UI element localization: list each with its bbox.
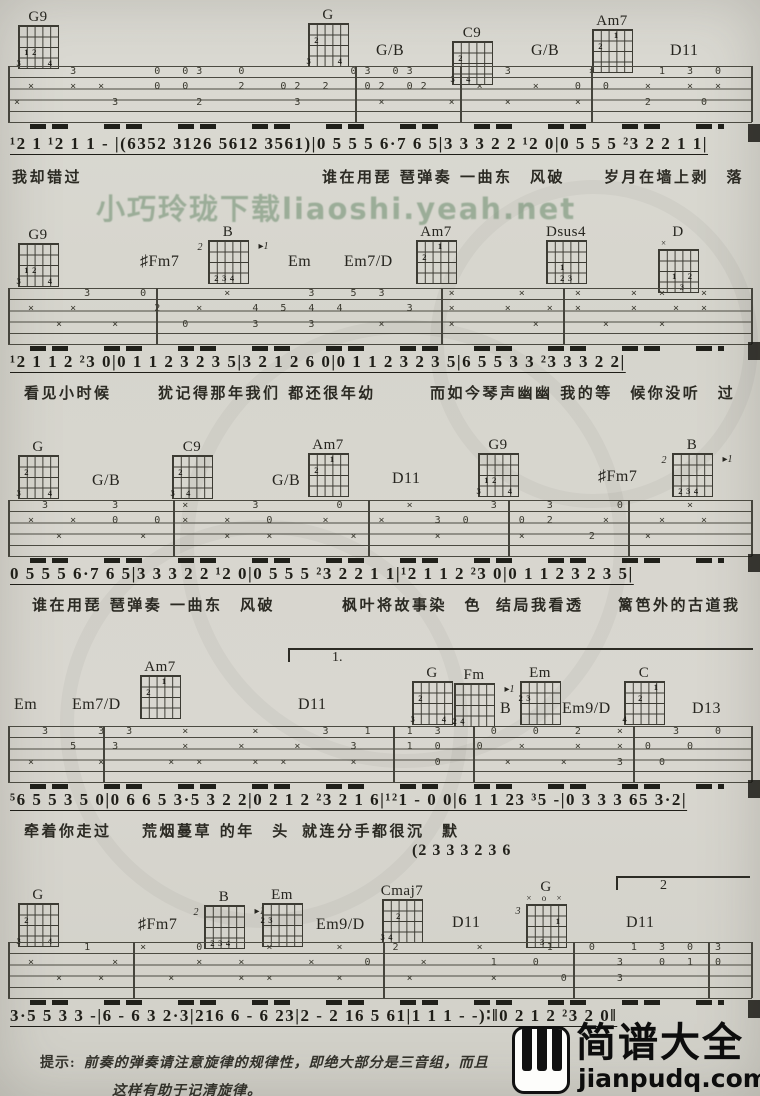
chord-diagram-label: B <box>206 225 250 239</box>
chord-finger-number: 2 <box>314 36 318 44</box>
chord-diagram-label: C9 <box>450 26 494 40</box>
melody-line: ¹2 1 1 2 ²3 0|0 1 1 2 3 2 3 5|3 2 1 2 6 … <box>10 352 756 372</box>
chord-finger-number: 4 <box>694 487 698 495</box>
chord-label: D11 <box>452 914 480 932</box>
chord-label: D11 <box>670 42 698 60</box>
tab-barline <box>8 288 10 344</box>
scan-edge-mark <box>748 124 760 142</box>
chord-diagram: Em23 <box>260 888 304 947</box>
piano-key <box>552 1029 562 1071</box>
chord-finger-number: 4 <box>48 489 52 497</box>
chord-grid: 12 <box>140 675 181 719</box>
tab-barline <box>751 500 753 556</box>
chord-diagram: B2342▸1 <box>670 438 714 497</box>
chord-diagram-label: Em <box>518 666 562 680</box>
chord-grid: 124 <box>624 681 665 725</box>
chord-label: B <box>500 700 511 718</box>
chord-finger-number: 2 <box>560 274 564 282</box>
chord-finger-number: 1 <box>556 917 560 925</box>
lyric-segment: 犹记得那年我们 都还很年幼 <box>158 382 376 403</box>
site-logo: 简谱大全 jianpudq.com <box>512 1022 760 1096</box>
chord-label: G/B <box>531 42 559 60</box>
chord-diagram: Fm24▸1 <box>452 668 496 727</box>
chord-grid: 2342▸1 <box>672 453 713 497</box>
chord-finger-number: 2 <box>458 54 462 62</box>
chord-grid: 123 <box>546 240 587 284</box>
chord-label: G/B <box>272 472 300 490</box>
chord-label: D11 <box>392 470 420 488</box>
sheet-page: 小巧玲珑下载liaoshi.yeah.net G91234G234G/BC923… <box>0 0 760 1096</box>
chord-finger-number: 1 <box>330 455 334 463</box>
chord-diagram: Am712 <box>590 14 634 73</box>
chord-diagram: Em23 <box>518 666 562 725</box>
chord-label: D13 <box>692 700 721 718</box>
chord-finger-number: 1 <box>162 677 166 685</box>
beam-row <box>30 124 724 129</box>
chord-right-marker: ▸1 <box>722 454 732 465</box>
lyric-segment: 荒烟蔓草 的年 头 <box>142 820 290 841</box>
lyric-segment: 看见小时候 <box>24 382 112 403</box>
chord-diagram: G91234 <box>16 228 60 287</box>
chord-finger-number: 2 <box>598 42 602 50</box>
chord-diagram: G234 <box>16 440 60 499</box>
logo-title: 简谱大全 <box>576 1022 744 1064</box>
chord-finger-number: 4 <box>442 715 446 723</box>
chord-finger-number: 4 <box>338 57 342 65</box>
chord-finger-number: 3 <box>568 274 572 282</box>
chord-finger-number: 3 <box>411 715 415 723</box>
chord-diagram: G91234 <box>476 438 520 497</box>
chord-grid: 24▸1 <box>454 683 495 727</box>
tab-barline <box>8 726 10 782</box>
chord-finger-number: 2 <box>422 253 426 261</box>
chord-finger-number: 2 <box>24 916 28 924</box>
lyric-segment: 谁在用琵 琶弹奏 一曲东 风破 <box>322 166 565 187</box>
chord-grid: 234 <box>18 903 59 947</box>
chord-finger-number: 2 <box>396 912 400 920</box>
lyric-segment: 篱笆外的古道我 <box>618 594 741 615</box>
chord-diagram-label: Am7 <box>590 14 634 28</box>
lyric-segment: 牵着你走过 <box>24 820 112 841</box>
pickup-notes: (2 3 3 3 2 3 6 <box>412 842 511 860</box>
piano-keys-icon <box>512 1026 570 1094</box>
tab-staff: 3 0 03 0 03 03 3 × 1 3 0 × × × 0 0 2 02 … <box>8 66 752 123</box>
tab-lane: × × 0 3 3 × × × × × <box>14 320 750 330</box>
chord-diagram-label: Am7 <box>138 660 182 674</box>
chord-finger-number: 3 <box>526 694 530 702</box>
tab-lane: × × × × × 0 × 1 0 3 0 1 0 <box>14 958 750 968</box>
chord-diagram-label: G9 <box>16 228 60 242</box>
volta-bracket: 2 <box>616 876 750 890</box>
chord-grid: 234 <box>412 681 453 725</box>
tab-lane: × × × × × × × 0 × × 3 0 <box>14 758 750 768</box>
tab-barline <box>8 500 10 556</box>
chord-diagram-label: G <box>410 666 454 680</box>
chord-diagram: C124 <box>622 666 666 725</box>
chord-diagram: G234 <box>306 8 350 67</box>
chord-diagram: Cmaj7234 <box>380 884 424 943</box>
chord-diagram: G91234 <box>16 10 60 69</box>
chord-diagram-label: Dsus4 <box>544 225 588 239</box>
tab-lane: 3 0 03 0 03 03 3 × 1 3 0 <box>14 67 750 77</box>
chord-finger-number: 3 <box>307 57 311 65</box>
tab-lane: × × 0 0 × × 0 × × 3 0 0 2 × × × <box>14 516 750 526</box>
chord-finger-number: 2 <box>519 694 523 702</box>
chord-finger-number: 2 <box>261 916 265 924</box>
chord-diagram-label: G <box>306 8 350 22</box>
chord-finger-number: 1 <box>672 272 676 280</box>
tab-lane: 1 × 0 × × 2 × 1 0 1 3 0 3 <box>14 943 750 953</box>
chord-right-marker: ▸1 <box>258 241 268 252</box>
chord-finger-number: 4 <box>508 487 512 495</box>
chord-finger-number: 1 <box>438 242 442 250</box>
volta-bracket: 1. <box>288 648 753 662</box>
chord-label: Em9/D <box>562 700 611 718</box>
tab-lane: × 3 2 3 × × × × 2 0 <box>14 98 750 108</box>
tab-lane: × × × 0 0 2 02 2 02 02 × × 0 0 × × × <box>14 82 750 92</box>
chord-finger-number: 4 <box>230 274 234 282</box>
chord-finger-number: 1 <box>484 476 488 484</box>
chord-finger-number: 2 <box>638 694 642 702</box>
tab-staff: 3 0 × 3 5 3 × × × × × × × × 2 × 4 5 4 4 … <box>8 288 752 345</box>
chord-finger-number: 2 <box>32 48 36 56</box>
piano-key <box>537 1029 547 1071</box>
chord-finger-number: 4 <box>186 489 190 497</box>
chord-diagram-label: G <box>524 880 568 894</box>
chord-grid: 2342▸1 <box>208 240 249 284</box>
chord-diagram-label: G <box>16 888 60 902</box>
tab-lane: × × × × × × × 2 × <box>14 532 750 542</box>
chord-finger-number: 2 <box>418 694 422 702</box>
chord-finger-number: 2 <box>688 272 692 280</box>
chord-finger-number: 1 <box>24 48 28 56</box>
chord-diagram: G234 <box>16 888 60 947</box>
chord-finger-number: 2 <box>178 468 182 476</box>
chord-diagram-label: Am7 <box>414 225 458 239</box>
chord-diagram-label: D <box>656 225 700 239</box>
logo-domain: jianpudq.com <box>578 1066 760 1092</box>
chord-finger-number: 2 <box>32 266 36 274</box>
chord-finger-number: 2 <box>492 476 496 484</box>
scan-edge-mark <box>748 1000 760 1018</box>
chord-right-marker: ▸1 <box>504 684 514 695</box>
chord-diagram-label: B <box>202 890 246 904</box>
chord-left-marker: 2 <box>198 242 203 253</box>
chord-grid: 1234 <box>478 453 519 497</box>
beam-row <box>30 346 724 351</box>
chord-left-marker: 3 <box>516 906 521 917</box>
chord-finger-number: 2 <box>24 468 28 476</box>
scan-edge-mark <box>748 342 760 360</box>
chord-finger-number: 2 <box>146 688 150 696</box>
chord-grid: 1234 <box>18 25 59 69</box>
chord-diagram-label: Am7 <box>306 438 350 452</box>
chord-left-marker: 2 <box>194 907 199 918</box>
lyric-segment: 结局我看透 <box>496 594 584 615</box>
chord-diagram: B2342▸1 <box>206 225 250 284</box>
chord-finger-number: 2 <box>214 274 218 282</box>
tab-staff: 3 3 × 3 0 × 3 3 0 × × × 0 0 × × 0 × × 3 … <box>8 500 752 557</box>
tip-label: 提示: <box>40 1056 76 1071</box>
chord-diagram-label: G <box>16 440 60 454</box>
chord-diagram-label: Fm <box>452 668 496 682</box>
chord-grid: 12 <box>416 240 457 284</box>
tab-barline <box>8 942 10 998</box>
chord-finger-number: 2 <box>453 717 457 725</box>
melody-line: ⁵6 5 5 3 5 0|0 6 6 5 3·5 3 2 2|0 2 1 2 ²… <box>10 790 756 810</box>
tab-lane: 3 3 × 3 0 × 3 3 0 × <box>14 501 750 511</box>
chord-top-marks: × o × <box>524 894 568 903</box>
tab-lane: × × × × × × × × 0 3 <box>14 974 750 984</box>
chord-grid: 12 <box>308 453 349 497</box>
chord-finger-number: 3 <box>171 489 175 497</box>
chord-diagram: Am712 <box>306 438 350 497</box>
scan-edge-mark <box>748 780 760 798</box>
chord-diagram: C9234 <box>170 440 214 499</box>
scan-edge-mark <box>748 554 760 572</box>
lyric-segment: 而如今琴声幽幽 我的等 候你没听 过 <box>430 382 735 403</box>
chord-grid: 234 <box>172 455 213 499</box>
watermark-text: 小巧玲珑下载liaoshi.yeah.net <box>96 186 576 228</box>
chord-diagram: Dsus4123 <box>544 225 588 284</box>
chord-finger-number: 3 <box>222 274 226 282</box>
chord-label: Em <box>14 696 37 714</box>
tab-barline <box>751 66 753 122</box>
lyric-segment: 谁在用琵 琶弹奏 一曲东 风破 <box>32 594 275 615</box>
chord-grid: 23 <box>520 681 561 725</box>
chord-finger-number: 1 <box>614 31 618 39</box>
tab-lane: 3 3 3 × × 3 1 1 3 0 0 2 × 3 0 <box>14 727 750 737</box>
chord-finger-number: 2 <box>314 466 318 474</box>
lyric-segment: 我却错过 <box>12 166 82 187</box>
chord-label: G/B <box>376 42 404 60</box>
lyric-segment: 就连分手都很沉 默 <box>302 820 460 841</box>
chord-label: D11 <box>626 914 654 932</box>
tab-lane: × × 2 × 4 5 4 4 3 × × × × × × × <box>14 304 750 314</box>
lyric-segment: 岁月在墙上剥 落 <box>604 166 744 187</box>
chord-label: Em <box>288 253 311 271</box>
chord-label: D11 <box>298 696 326 714</box>
chord-diagram-label: Cmaj7 <box>380 884 424 898</box>
chord-diagram-label: G9 <box>16 10 60 24</box>
chord-finger-number: 1 <box>654 683 658 691</box>
tab-lane: 5 3 × × × 3 1 0 0 × × × 0 0 <box>14 742 750 752</box>
chord-diagram: D× 123 <box>656 225 700 293</box>
chord-label: ♯Fm7 <box>138 916 177 934</box>
lyric-segment: 枫叶将故事染 色 <box>342 594 482 615</box>
chord-finger-number: 3 <box>381 933 385 941</box>
chord-label: G/B <box>92 472 120 490</box>
chord-finger-number: 4 <box>623 715 627 723</box>
chord-label: Em7/D <box>344 253 393 271</box>
chord-diagram-label: Em <box>260 888 304 902</box>
chord-diagram-label: G9 <box>476 438 520 452</box>
chord-finger-number: 1 <box>560 263 564 271</box>
chord-diagram-label: B <box>670 438 714 452</box>
chord-diagram-label: C9 <box>170 440 214 454</box>
chord-label: ♯Fm7 <box>140 253 179 271</box>
chord-finger-number: 3 <box>17 489 21 497</box>
tab-lane: 3 0 × 3 5 3 × × × × × × <box>14 289 750 299</box>
chord-label: Em7/D <box>72 696 121 714</box>
chord-finger-number: 3 <box>17 277 21 285</box>
tab-staff: 1 × 0 × × 2 × 1 0 1 3 0 3 × × × × × 0 × … <box>8 942 752 999</box>
chord-finger-number: 4 <box>388 933 392 941</box>
chord-diagram: Am712 <box>138 660 182 719</box>
tip-text-line2: 这样有助于记清旋律。 <box>112 1080 262 1096</box>
chord-finger-number: 2 <box>678 487 682 495</box>
chord-finger-number: 3 <box>477 487 481 495</box>
chord-diagram: B2342▸1 <box>202 890 246 949</box>
beam-row <box>30 1000 724 1005</box>
tab-staff: 3 3 3 × × 3 1 1 3 0 0 2 × 3 0 5 3 × × × … <box>8 726 752 783</box>
chord-finger-number: 3 <box>686 487 690 495</box>
chord-finger-number: 3 <box>268 916 272 924</box>
chord-finger-number: 1 <box>24 266 28 274</box>
beam-row <box>30 784 724 789</box>
chord-diagram: G234 <box>410 666 454 725</box>
tab-barline <box>751 288 753 344</box>
chord-diagram-label: C <box>622 666 666 680</box>
chord-grid: 234 <box>18 455 59 499</box>
chord-finger-number: 4 <box>48 277 52 285</box>
melody-line: ¹2 1 ¹2 1 1 - |(6352 3126 5612 3561)|0 5… <box>10 134 756 154</box>
piano-key <box>522 1029 532 1071</box>
chord-grid: 1234 <box>18 243 59 287</box>
chord-finger-number: 4 <box>460 717 464 725</box>
chord-top-marks: × <box>656 239 700 248</box>
beam-row <box>30 558 724 563</box>
chord-grid: 234 <box>382 899 423 943</box>
chord-diagram: Am712 <box>414 225 458 284</box>
chord-label: ♯Fm7 <box>598 468 637 486</box>
chord-grid: 123 <box>658 249 699 293</box>
chord-grid: 23 <box>262 903 303 947</box>
tip-text-line1: 前奏的弹奏请注意旋律的规律性，即绝大部分是三音组，而且 <box>84 1056 489 1071</box>
tab-barline <box>751 726 753 782</box>
chord-label: Em9/D <box>316 916 365 934</box>
chord-grid: 234 <box>308 23 349 67</box>
melody-line: 0 5 5 5 6·7 6 5|3 3 3 2 2 ¹2 0|0 5 5 5 ²… <box>10 564 756 584</box>
tab-barline <box>8 66 10 122</box>
chord-left-marker: 2 <box>662 455 667 466</box>
tab-barline <box>751 942 753 998</box>
chord-diagram: G× o ×133 <box>524 880 568 948</box>
